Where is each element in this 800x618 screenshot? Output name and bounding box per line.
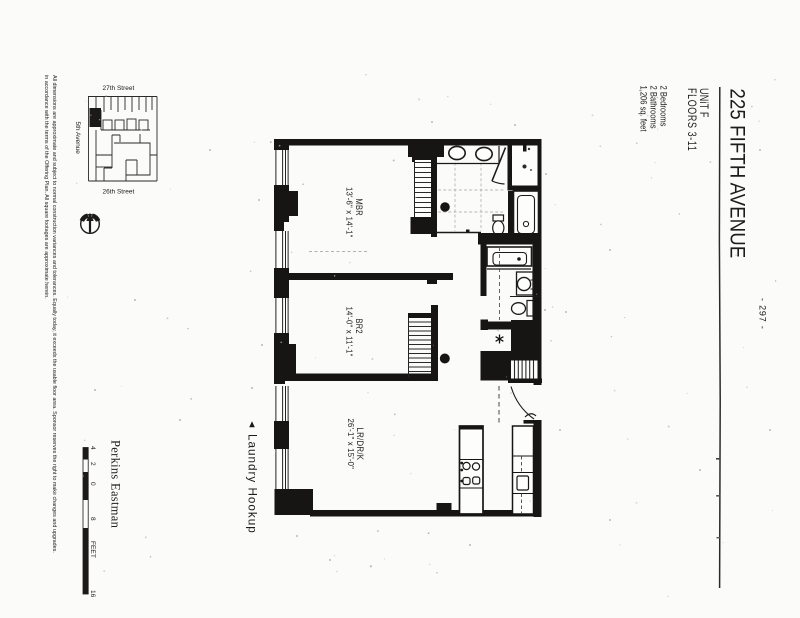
svg-text:- 297 -: - 297 - [758,298,768,330]
svg-text:Laundry Hookup: Laundry Hookup [245,434,258,534]
svg-text:0: 0 [89,482,96,486]
svg-text:1,206 sq. feet: 1,206 sq. feet [638,86,649,133]
svg-text:in accordance with the terms o: in accordance with the terms of the Offe… [43,75,49,299]
svg-text:27th Street: 27th Street [103,85,135,92]
svg-text:8: 8 [89,517,96,521]
svg-text:26'-1" x 15'-0": 26'-1" x 15'-0" [346,419,355,470]
svg-text:UNiT F: UNiT F [697,88,709,118]
svg-text:All dimensions are approximate: All dimensions are approximate and subje… [51,75,57,553]
svg-text:225 FIFTH AVENUE: 225 FIFTH AVENUE [725,89,749,259]
svg-text:FLOORS 3-11: FLOORS 3-11 [685,88,697,151]
svg-text:16: 16 [89,590,96,598]
svg-text:26th Street: 26th Street [103,189,135,196]
svg-text:LR/DR/K: LR/DR/K [355,428,366,461]
svg-text:4: 4 [89,446,96,450]
svg-text:5th Avenue: 5th Avenue [74,122,81,155]
svg-text:2: 2 [89,462,96,466]
svg-text:FEET: FEET [89,541,96,558]
svg-text:MBR: MBR [354,199,364,216]
svg-text:Perkins Eastman: Perkins Eastman [109,440,123,529]
svg-text:14'-0" x 11'-1": 14'-0" x 11'-1" [344,307,353,357]
svg-text:BR2: BR2 [354,319,364,334]
svg-text:13'-6" x 14'-1": 13'-6" x 14'-1" [344,187,353,238]
